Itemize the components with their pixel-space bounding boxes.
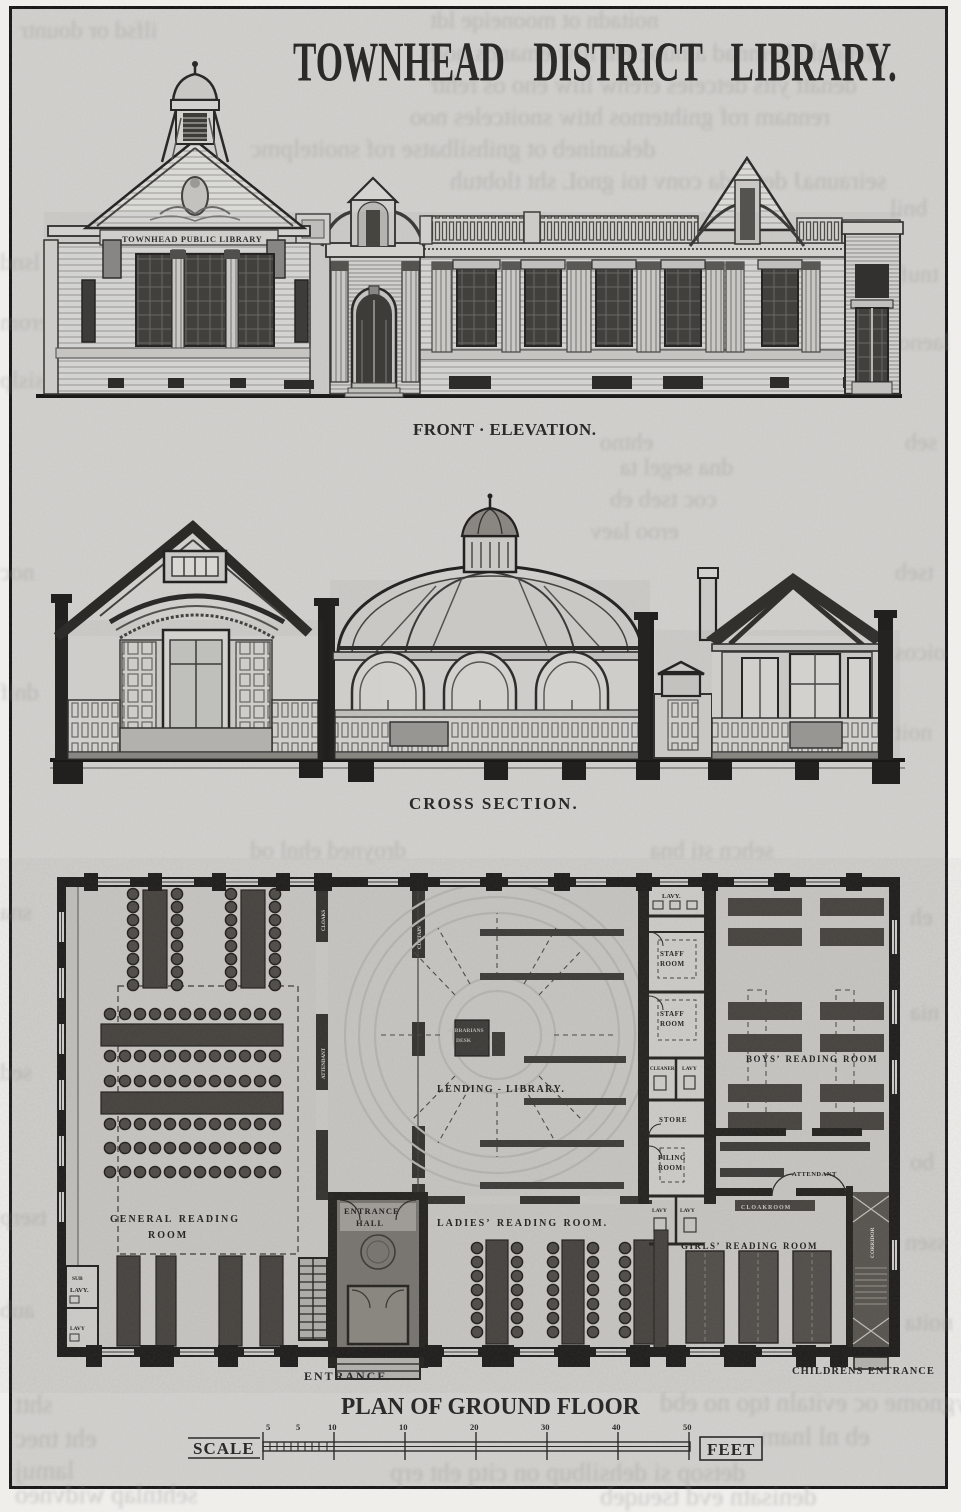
svg-text:5: 5: [296, 1422, 300, 1432]
svg-text:40: 40: [612, 1422, 621, 1432]
svg-text:30: 30: [541, 1422, 550, 1432]
svg-text:5: 5: [266, 1422, 270, 1432]
svg-text:10: 10: [328, 1422, 337, 1432]
svg-text:50: 50: [683, 1422, 692, 1432]
svg-text:10: 10: [399, 1422, 408, 1432]
svg-text:SCALE: SCALE: [193, 1439, 255, 1458]
svg-text:FEET: FEET: [707, 1440, 755, 1459]
svg-text:20: 20: [470, 1422, 479, 1432]
